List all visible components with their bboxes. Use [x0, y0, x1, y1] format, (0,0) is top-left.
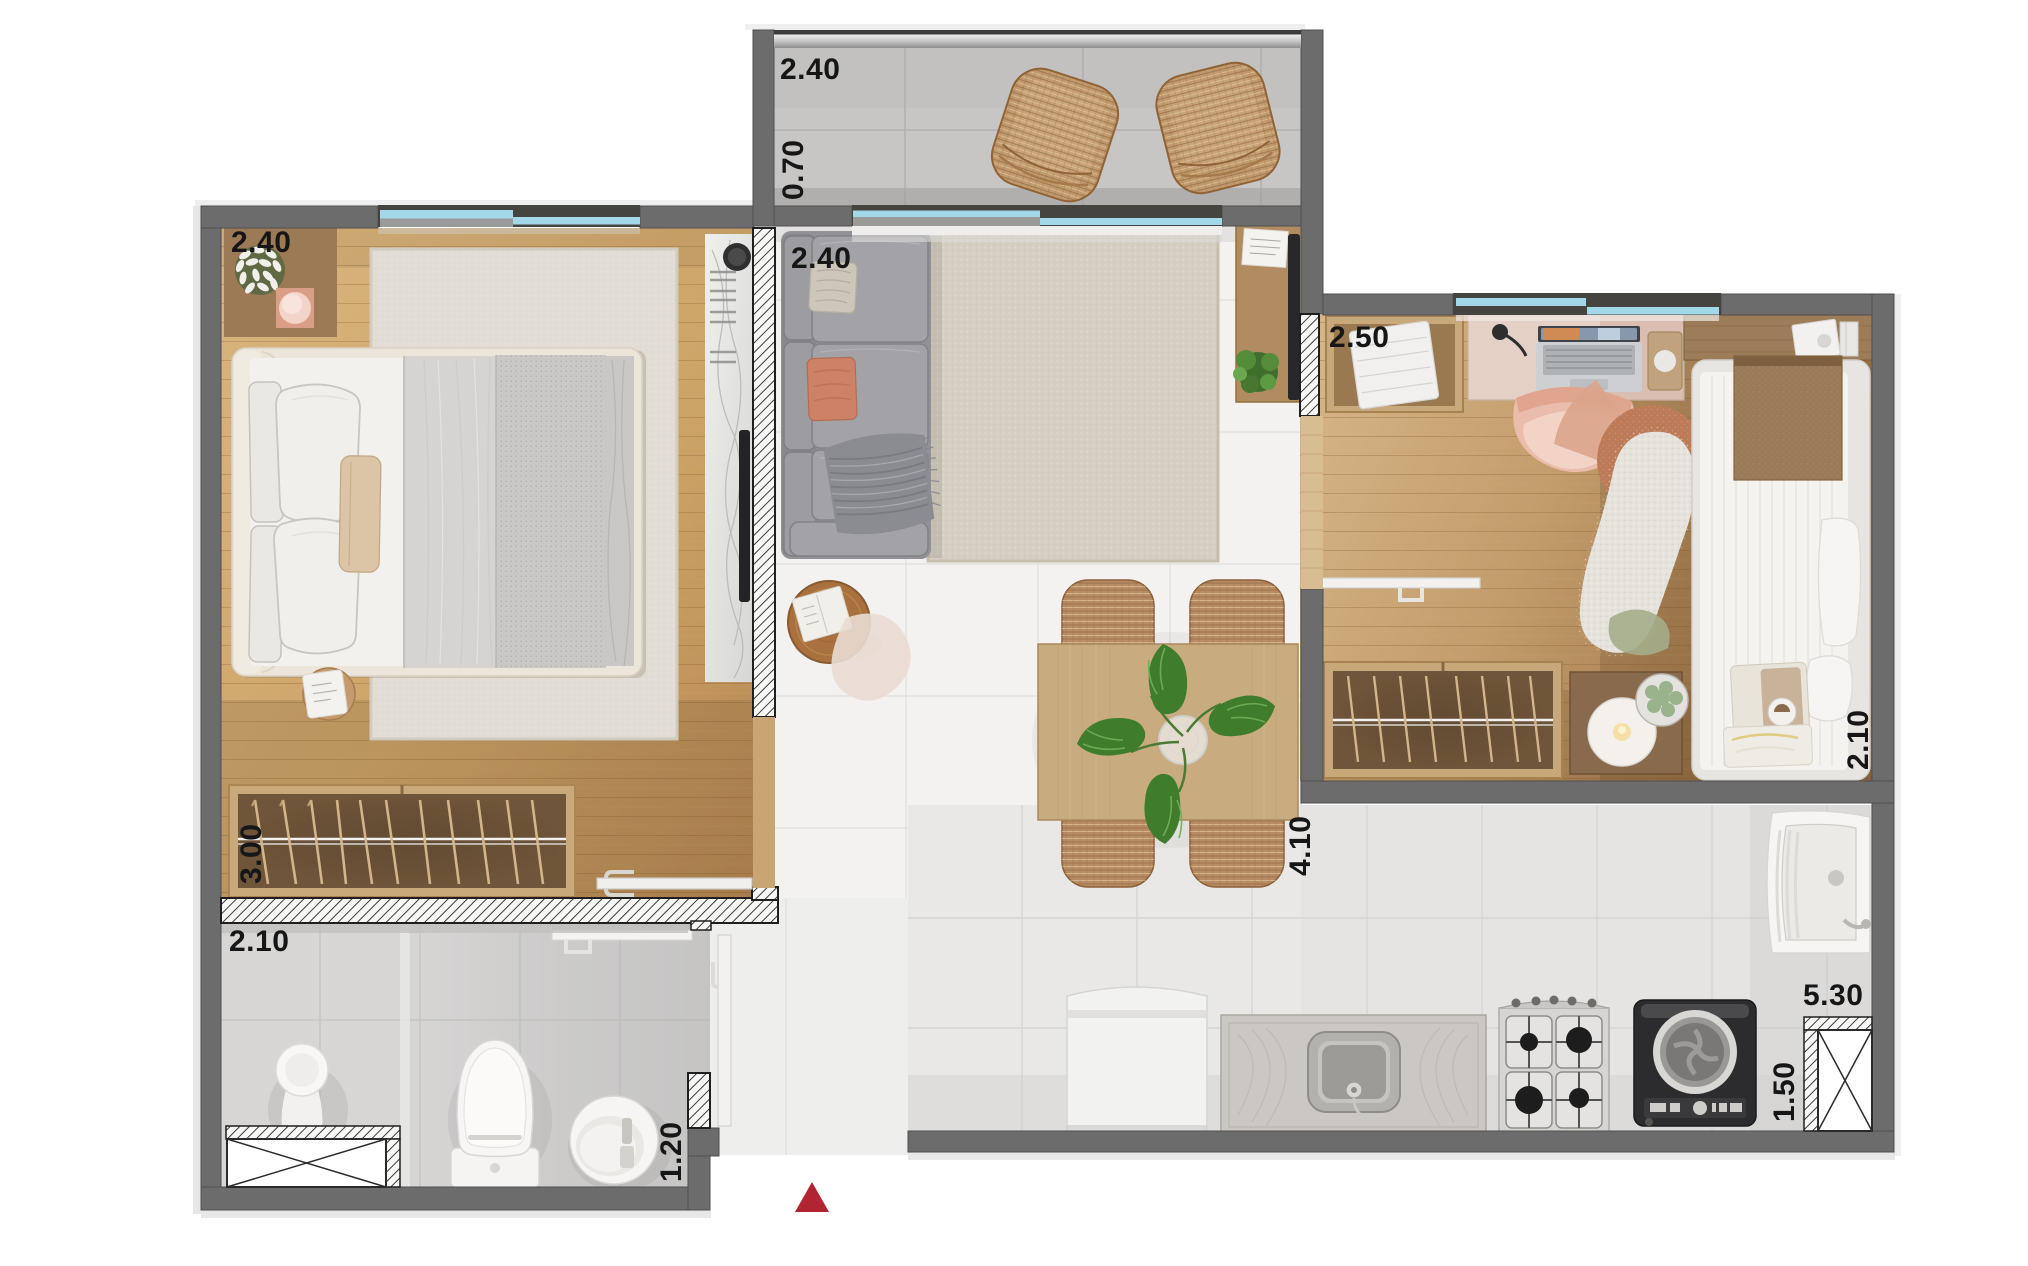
- svg-text:2.10: 2.10: [229, 925, 289, 958]
- svg-text:1.50: 1.50: [1768, 1062, 1801, 1122]
- svg-text:5.30: 5.30: [1803, 979, 1863, 1012]
- svg-text:2.50: 2.50: [1329, 321, 1389, 354]
- svg-text:2.40: 2.40: [231, 226, 291, 259]
- svg-text:2.40: 2.40: [780, 53, 840, 86]
- svg-text:2.40: 2.40: [791, 242, 851, 275]
- svg-text:4.10: 4.10: [1284, 816, 1317, 876]
- svg-text:3.00: 3.00: [235, 824, 268, 884]
- svg-text:2.10: 2.10: [1842, 710, 1875, 770]
- svg-text:1.20: 1.20: [655, 1122, 688, 1182]
- svg-text:0.70: 0.70: [777, 140, 810, 200]
